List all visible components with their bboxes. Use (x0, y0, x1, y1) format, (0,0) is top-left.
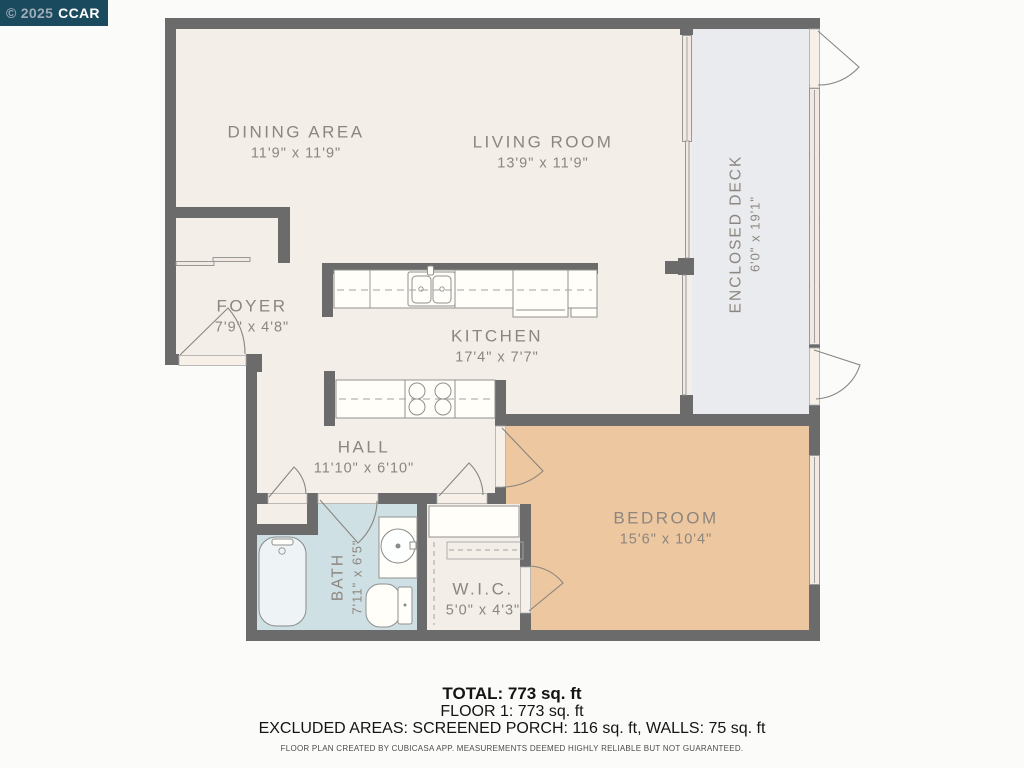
room-name: W.I.C. (363, 578, 603, 601)
deck-door-top-swing (818, 31, 859, 85)
total-area-text: TOTAL: 773 sq. ft (0, 684, 1024, 704)
room-name: LIVING ROOM (423, 131, 663, 154)
room-label-living: LIVING ROOM 13'9" x 11'9" (423, 131, 663, 174)
tub-faucet-icon (272, 539, 293, 545)
room-label-bedroom: BEDROOM 15'6" x 10'4" (546, 507, 786, 550)
closet-sliding-door (213, 258, 250, 262)
room-label-foyer: FOYER 7'9" x 4'8" (132, 295, 372, 338)
room-dims: 7'9" x 4'8" (132, 318, 372, 338)
room-name: ENCLOSED DECK (726, 114, 747, 354)
watermark-badge: © 2025 CCAR (0, 0, 108, 26)
room-name: HALL (244, 436, 484, 459)
kitchen-cabinet (571, 308, 597, 317)
disclaimer-text: FLOOR PLAN CREATED BY CUBICASA APP. MEAS… (0, 744, 1024, 753)
room-label-kitchen: KITCHEN 17'4" x 7'7" (377, 325, 617, 368)
watermark-brand: CCAR (58, 5, 100, 21)
room-dims: 17'4" x 7'7" (377, 348, 617, 368)
room-name: KITCHEN (377, 325, 617, 348)
closet-sliding-door (176, 262, 214, 266)
floor-plan-page: © 2025 CCAR DINING AREA 11'9" x 11'9" LI… (0, 0, 1024, 768)
deck-door-mid-swing (814, 350, 860, 399)
bathtub (259, 537, 306, 626)
room-dims: 11'9" x 11'9" (176, 144, 416, 164)
wic-shelf (429, 506, 519, 537)
room-dims: 5'0" x 4'3" (363, 601, 603, 621)
room-name: BATH (328, 457, 349, 697)
sliding-door-panel (686, 141, 690, 258)
sliding-door-panel (683, 275, 687, 395)
room-dims: 15'6" x 10'4" (546, 530, 786, 550)
room-label-dining: DINING AREA 11'9" x 11'9" (176, 121, 416, 164)
floor1-area-text: FLOOR 1: 773 sq. ft (0, 703, 1024, 721)
room-name: BEDROOM (546, 507, 786, 530)
watermark-year: © 2025 (6, 5, 53, 21)
room-dims: 6'0" x 19'1" (747, 114, 765, 354)
excluded-areas-text: EXCLUDED AREAS: SCREENED PORCH: 116 sq. … (0, 720, 1024, 738)
room-name: FOYER (132, 295, 372, 318)
room-dims: 13'9" x 11'9" (423, 154, 663, 174)
room-label-deck: ENCLOSED DECK 6'0" x 19'1" (726, 114, 765, 354)
room-name: DINING AREA (176, 121, 416, 144)
room-label-wic: W.I.C. 5'0" x 4'3" (363, 578, 603, 621)
faucet-icon (428, 266, 434, 275)
floor-plan (0, 0, 1024, 768)
room-label-bath: BATH 7'11" x 6'5" (328, 457, 367, 697)
